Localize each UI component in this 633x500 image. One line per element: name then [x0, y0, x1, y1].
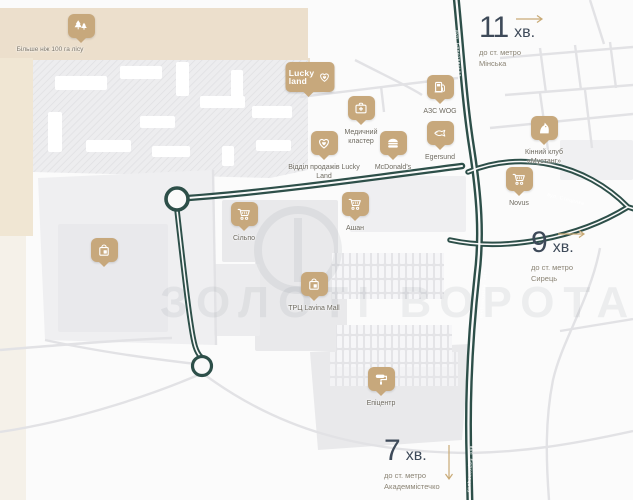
marker-azs-wog: АЗС WOG [401, 75, 479, 116]
trees-icon [68, 14, 95, 38]
roundabout-north [166, 188, 188, 210]
marker-shop-unlabeled [65, 238, 143, 270]
paint-roller-icon [368, 367, 395, 391]
marker-label: McDonald's [354, 163, 432, 172]
station-name: Сирець [531, 274, 631, 285]
heart-icon [317, 70, 331, 84]
travel-prefix: до ст. метро [531, 263, 631, 274]
station-name: Мінська [479, 59, 589, 70]
minutes-value: 11 [479, 13, 508, 43]
minutes-unit: хв. [514, 24, 535, 42]
marker-label: Більше ніж 100 га лісу [2, 46, 98, 54]
travel-time-syrets: 9 хв. до ст. метро Сирець [531, 228, 631, 284]
fuel-pump-icon [427, 75, 454, 99]
minutes-unit: хв. [406, 447, 427, 465]
heart-icon [311, 131, 338, 155]
minutes-value: 7 [384, 436, 400, 466]
marker-label: ТРЦ Lavina Mall [275, 304, 353, 313]
marker-lavina-mall: ТРЦ Lavina Mall [275, 272, 353, 313]
marker-forest: Більше ніж 100 га лісу [64, 14, 98, 54]
minutes-unit: хв. [553, 239, 574, 257]
station-name: Академмістечко [384, 482, 494, 493]
lucky-land-logo: Luckyland [286, 62, 335, 92]
marker-silpo: Сільпо [205, 202, 283, 243]
location-map: ЗОЛОТІ ВОРОТА вул. Берковецька вул. Берк… [0, 0, 633, 500]
marker-ashan: Ашан [316, 192, 394, 233]
cart-icon [231, 202, 258, 226]
marker-label: Сільпо [205, 234, 283, 243]
marker-label: Ашан [316, 224, 394, 233]
marker-epicentr: Епіцентр [342, 367, 420, 408]
marker-label: Egersund [401, 153, 479, 162]
marker-label: Кінний клуб «Мустанг» [517, 148, 571, 166]
logo-text: Luckyland [289, 69, 315, 85]
travel-prefix: до ст. метро [479, 48, 589, 59]
marker-lucky-land-logo: Luckyland [286, 62, 335, 92]
watermark-text: ЗОЛОТІ ВОРОТА [160, 278, 633, 328]
arrow-right-icon [557, 229, 587, 239]
marker-label: АЗС WOG [401, 107, 479, 116]
marker-mustang-club: Кінний клуб «Мустанг» [517, 116, 571, 166]
marker-egersund: Egersund [401, 121, 479, 162]
travel-time-minska: 11 хв. до ст. метро Мінська [479, 13, 589, 69]
bag-icon [91, 238, 118, 262]
arrow-right-icon [515, 14, 545, 24]
travel-prefix: до ст. метро [384, 471, 494, 482]
minutes-value: 9 [531, 228, 547, 258]
marker-label: Novus [480, 199, 558, 208]
cart-icon [506, 167, 533, 191]
marker-label: Відділ продажів Lucky Land [285, 163, 363, 181]
marker-label: Епіцентр [342, 399, 420, 408]
cart-icon [342, 192, 369, 216]
medical-case-icon [348, 96, 375, 120]
marker-novus: Novus [480, 167, 558, 208]
arrow-down-icon [444, 444, 454, 484]
roundabout-south [193, 357, 212, 376]
travel-time-akademmistechko: 7 хв. до ст. метро Академмістечко [384, 436, 494, 492]
fish-icon [427, 121, 454, 145]
horse-icon [531, 116, 558, 140]
bag-icon [301, 272, 328, 296]
